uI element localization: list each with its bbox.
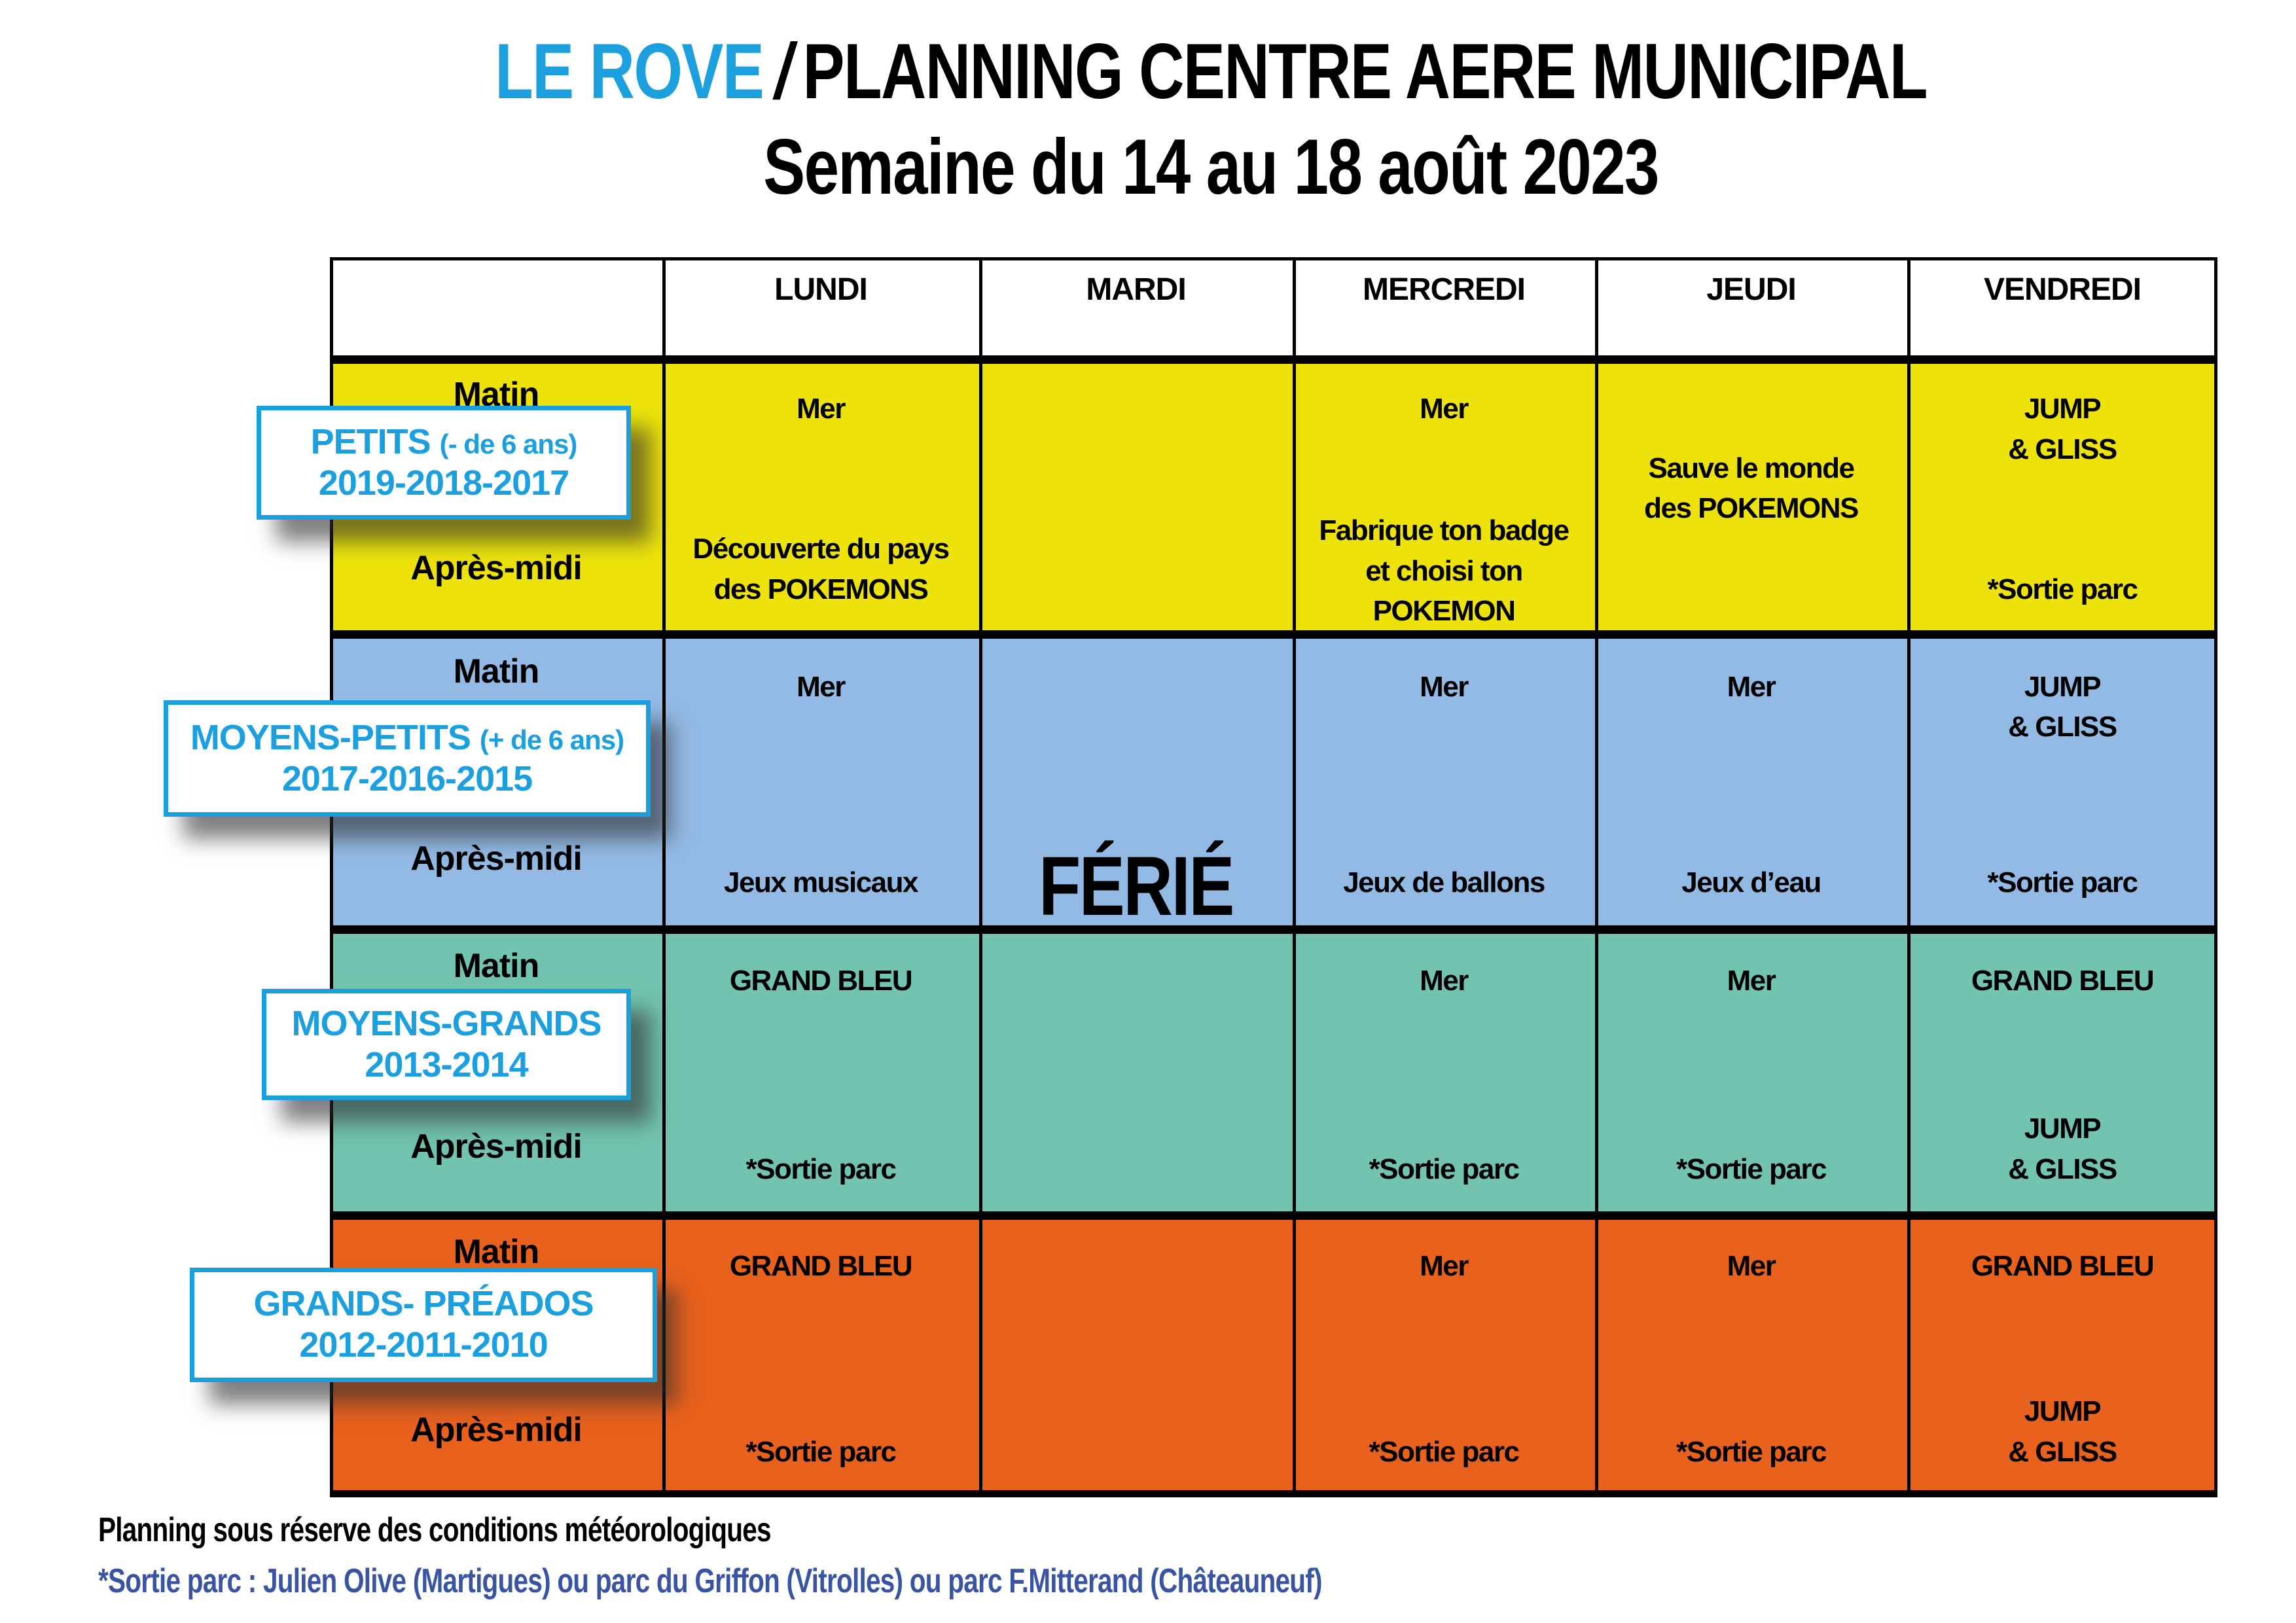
page-title: LE ROVE/PLANNING CENTRE AERE MUNICIPAL: [293, 26, 2129, 116]
grid-line: [330, 630, 2217, 639]
day-header-jeudi: JEUDI: [1595, 272, 1907, 308]
day-header-mercredi: MERCREDI: [1293, 272, 1595, 308]
group-name: MOYENS-PETITS: [190, 718, 471, 757]
activity-afternoon: *Sortie parc: [1296, 1149, 1592, 1190]
title-main: PLANNING CENTRE AERE MUNICIPAL: [803, 27, 1927, 115]
grid-line: [1293, 257, 1296, 1497]
activity-morning: GRAND BLEU: [666, 1246, 976, 1287]
footer-weather-note: Planning sous réserve des conditions mét…: [98, 1510, 771, 1550]
title-slash: /: [763, 27, 802, 115]
group-years: 2019-2018-2017: [319, 462, 569, 505]
activity-morning: JUMP & GLISS: [1910, 389, 2215, 469]
grid-line: [330, 257, 2217, 260]
activity-afternoon: *Sortie parc: [666, 1149, 976, 1190]
header-row: LUNDI MARDI MERCREDI JEUDI VENDREDI: [330, 257, 2217, 359]
period-matin: Matin: [330, 1232, 662, 1272]
day-header-lundi: LUNDI: [662, 272, 979, 308]
grid-line: [330, 925, 2217, 934]
activity-afternoon: *Sortie parc: [1598, 1432, 1904, 1472]
activity-day: Sauve le monde des POKEMONS: [1598, 448, 1904, 529]
activity-morning: Mer: [1296, 961, 1592, 1001]
cell-moyens-petits-lundi: Mer Jeux musicaux: [662, 634, 979, 929]
group-name: GRANDS- PRÉADOS: [253, 1284, 593, 1323]
activity-morning: Mer: [1296, 1246, 1592, 1287]
grid-line: [330, 355, 2217, 364]
cell-petits-jeudi: Sauve le monde des POKEMONS: [1595, 359, 1907, 634]
group-label-grands-preados: GRANDS- PRÉADOS 2012-2011-2010: [190, 1268, 657, 1382]
cell-moyens-grands-mercredi: Mer *Sortie parc: [1293, 929, 1595, 1215]
cell-moyens-grands-jeudi: Mer *Sortie parc: [1595, 929, 1907, 1215]
activity-morning: Mer: [1598, 961, 1904, 1001]
activity-morning: Mer: [1296, 667, 1592, 707]
period-matin: Matin: [330, 946, 662, 986]
group-years: 2013-2014: [365, 1044, 528, 1086]
cell-moyens-grands-vendredi: GRAND BLEU JUMP & GLISS: [1907, 929, 2217, 1215]
grid-line: [330, 1211, 2217, 1220]
group-name: MOYENS-GRANDS: [291, 1004, 601, 1043]
activity-morning: Mer: [1598, 1246, 1904, 1287]
activity-afternoon: Découverte du pays des POKEMONS: [666, 529, 976, 609]
activity-morning: Mer: [666, 389, 976, 429]
activity-afternoon: *Sortie parc: [1910, 863, 2215, 903]
activity-afternoon: *Sortie parc: [1296, 1432, 1592, 1472]
grid-line: [1595, 257, 1598, 1497]
cell-moyens-grands-lundi: GRAND BLEU *Sortie parc: [662, 929, 979, 1215]
group-age-note: (+ de 6 ans): [480, 724, 624, 755]
period-apres-midi: Après-midi: [330, 1127, 662, 1166]
group-name: PETITS: [311, 422, 431, 461]
activity-afternoon: Jeux de ballons: [1296, 863, 1592, 903]
activity-morning: GRAND BLEU: [666, 961, 976, 1001]
activity-afternoon: *Sortie parc: [1910, 569, 2215, 610]
activity-morning: GRAND BLEU: [1910, 1246, 2215, 1287]
day-header-mardi: MARDI: [979, 272, 1293, 308]
group-years: 2012-2011-2010: [299, 1324, 547, 1366]
period-apres-midi: Après-midi: [330, 839, 662, 878]
footer-parks-note: *Sortie parc : Julien Olive (Martigues) …: [98, 1561, 1322, 1601]
grid-line: [662, 257, 666, 1497]
cell-grands-preados-lundi: GRAND BLEU *Sortie parc: [662, 1215, 979, 1497]
group-label-moyens-petits: MOYENS-PETITS (+ de 6 ans) 2017-2016-201…: [164, 700, 651, 817]
grid-line: [2214, 257, 2217, 1497]
cell-grands-preados-mercredi: Mer *Sortie parc: [1293, 1215, 1595, 1497]
grid-line: [979, 257, 982, 1497]
group-label-moyens-grands: MOYENS-GRANDS 2013-2014: [262, 989, 631, 1100]
cell-petits-mercredi: Mer Fabrique ton badge et choisi ton POK…: [1293, 359, 1595, 634]
activity-afternoon: Jeux musicaux: [666, 863, 976, 903]
grid-line: [330, 1490, 2217, 1497]
activity-morning: GRAND BLEU: [1910, 961, 2215, 1001]
planning-poster: { "colors": { "accent_blue": "#1C9FDE", …: [0, 0, 2296, 1623]
period-apres-midi: Après-midi: [330, 548, 662, 588]
cell-petits-vendredi: JUMP & GLISS *Sortie parc: [1907, 359, 2217, 634]
cell-grands-preados-jeudi: Mer *Sortie parc: [1595, 1215, 1907, 1497]
activity-morning: Mer: [1296, 389, 1592, 429]
group-years: 2017-2016-2015: [282, 758, 532, 800]
cell-moyens-petits-vendredi: JUMP & GLISS *Sortie parc: [1907, 634, 2217, 929]
group-label-petits: PETITS (- de 6 ans) 2019-2018-2017: [257, 406, 631, 520]
activity-afternoon: JUMP & GLISS: [1910, 1109, 2215, 1189]
cell-grands-preados-vendredi: GRAND BLEU JUMP & GLISS: [1907, 1215, 2217, 1497]
activity-afternoon: Fabrique ton badge et choisi ton POKEMON: [1296, 510, 1592, 632]
cell-petits-mardi: [979, 359, 1293, 634]
cell-moyens-petits-jeudi: Mer Jeux d’eau: [1595, 634, 1907, 929]
cell-moyens-grands-mardi: [979, 929, 1293, 1215]
grid-line: [1907, 257, 1910, 1497]
cell-moyens-petits-mercredi: Mer Jeux de ballons: [1293, 634, 1595, 929]
cell-grands-preados-mardi: [979, 1215, 1293, 1497]
activity-afternoon: *Sortie parc: [666, 1432, 976, 1472]
title-brand: LE ROVE: [495, 27, 763, 115]
period-matin: Matin: [330, 652, 662, 691]
cell-moyens-petits-mardi: FÉRIÉ: [979, 634, 1293, 929]
cell-petits-lundi: Mer Découverte du pays des POKEMONS: [662, 359, 979, 634]
activity-morning: Mer: [1598, 667, 1904, 707]
activity-morning: JUMP & GLISS: [1910, 667, 2215, 747]
page-subtitle: Semaine du 14 au 18 août 2023: [293, 122, 2129, 212]
activity-afternoon: JUMP & GLISS: [1910, 1391, 2215, 1472]
holiday-label: FÉRIÉ: [1007, 838, 1265, 935]
activity-afternoon: *Sortie parc: [1598, 1149, 1904, 1190]
group-age-note: (- de 6 ans): [440, 429, 577, 459]
period-apres-midi: Après-midi: [330, 1410, 662, 1450]
activity-afternoon: Jeux d’eau: [1598, 863, 1904, 903]
day-header-vendredi: VENDREDI: [1907, 272, 2217, 308]
activity-morning: Mer: [666, 667, 976, 707]
